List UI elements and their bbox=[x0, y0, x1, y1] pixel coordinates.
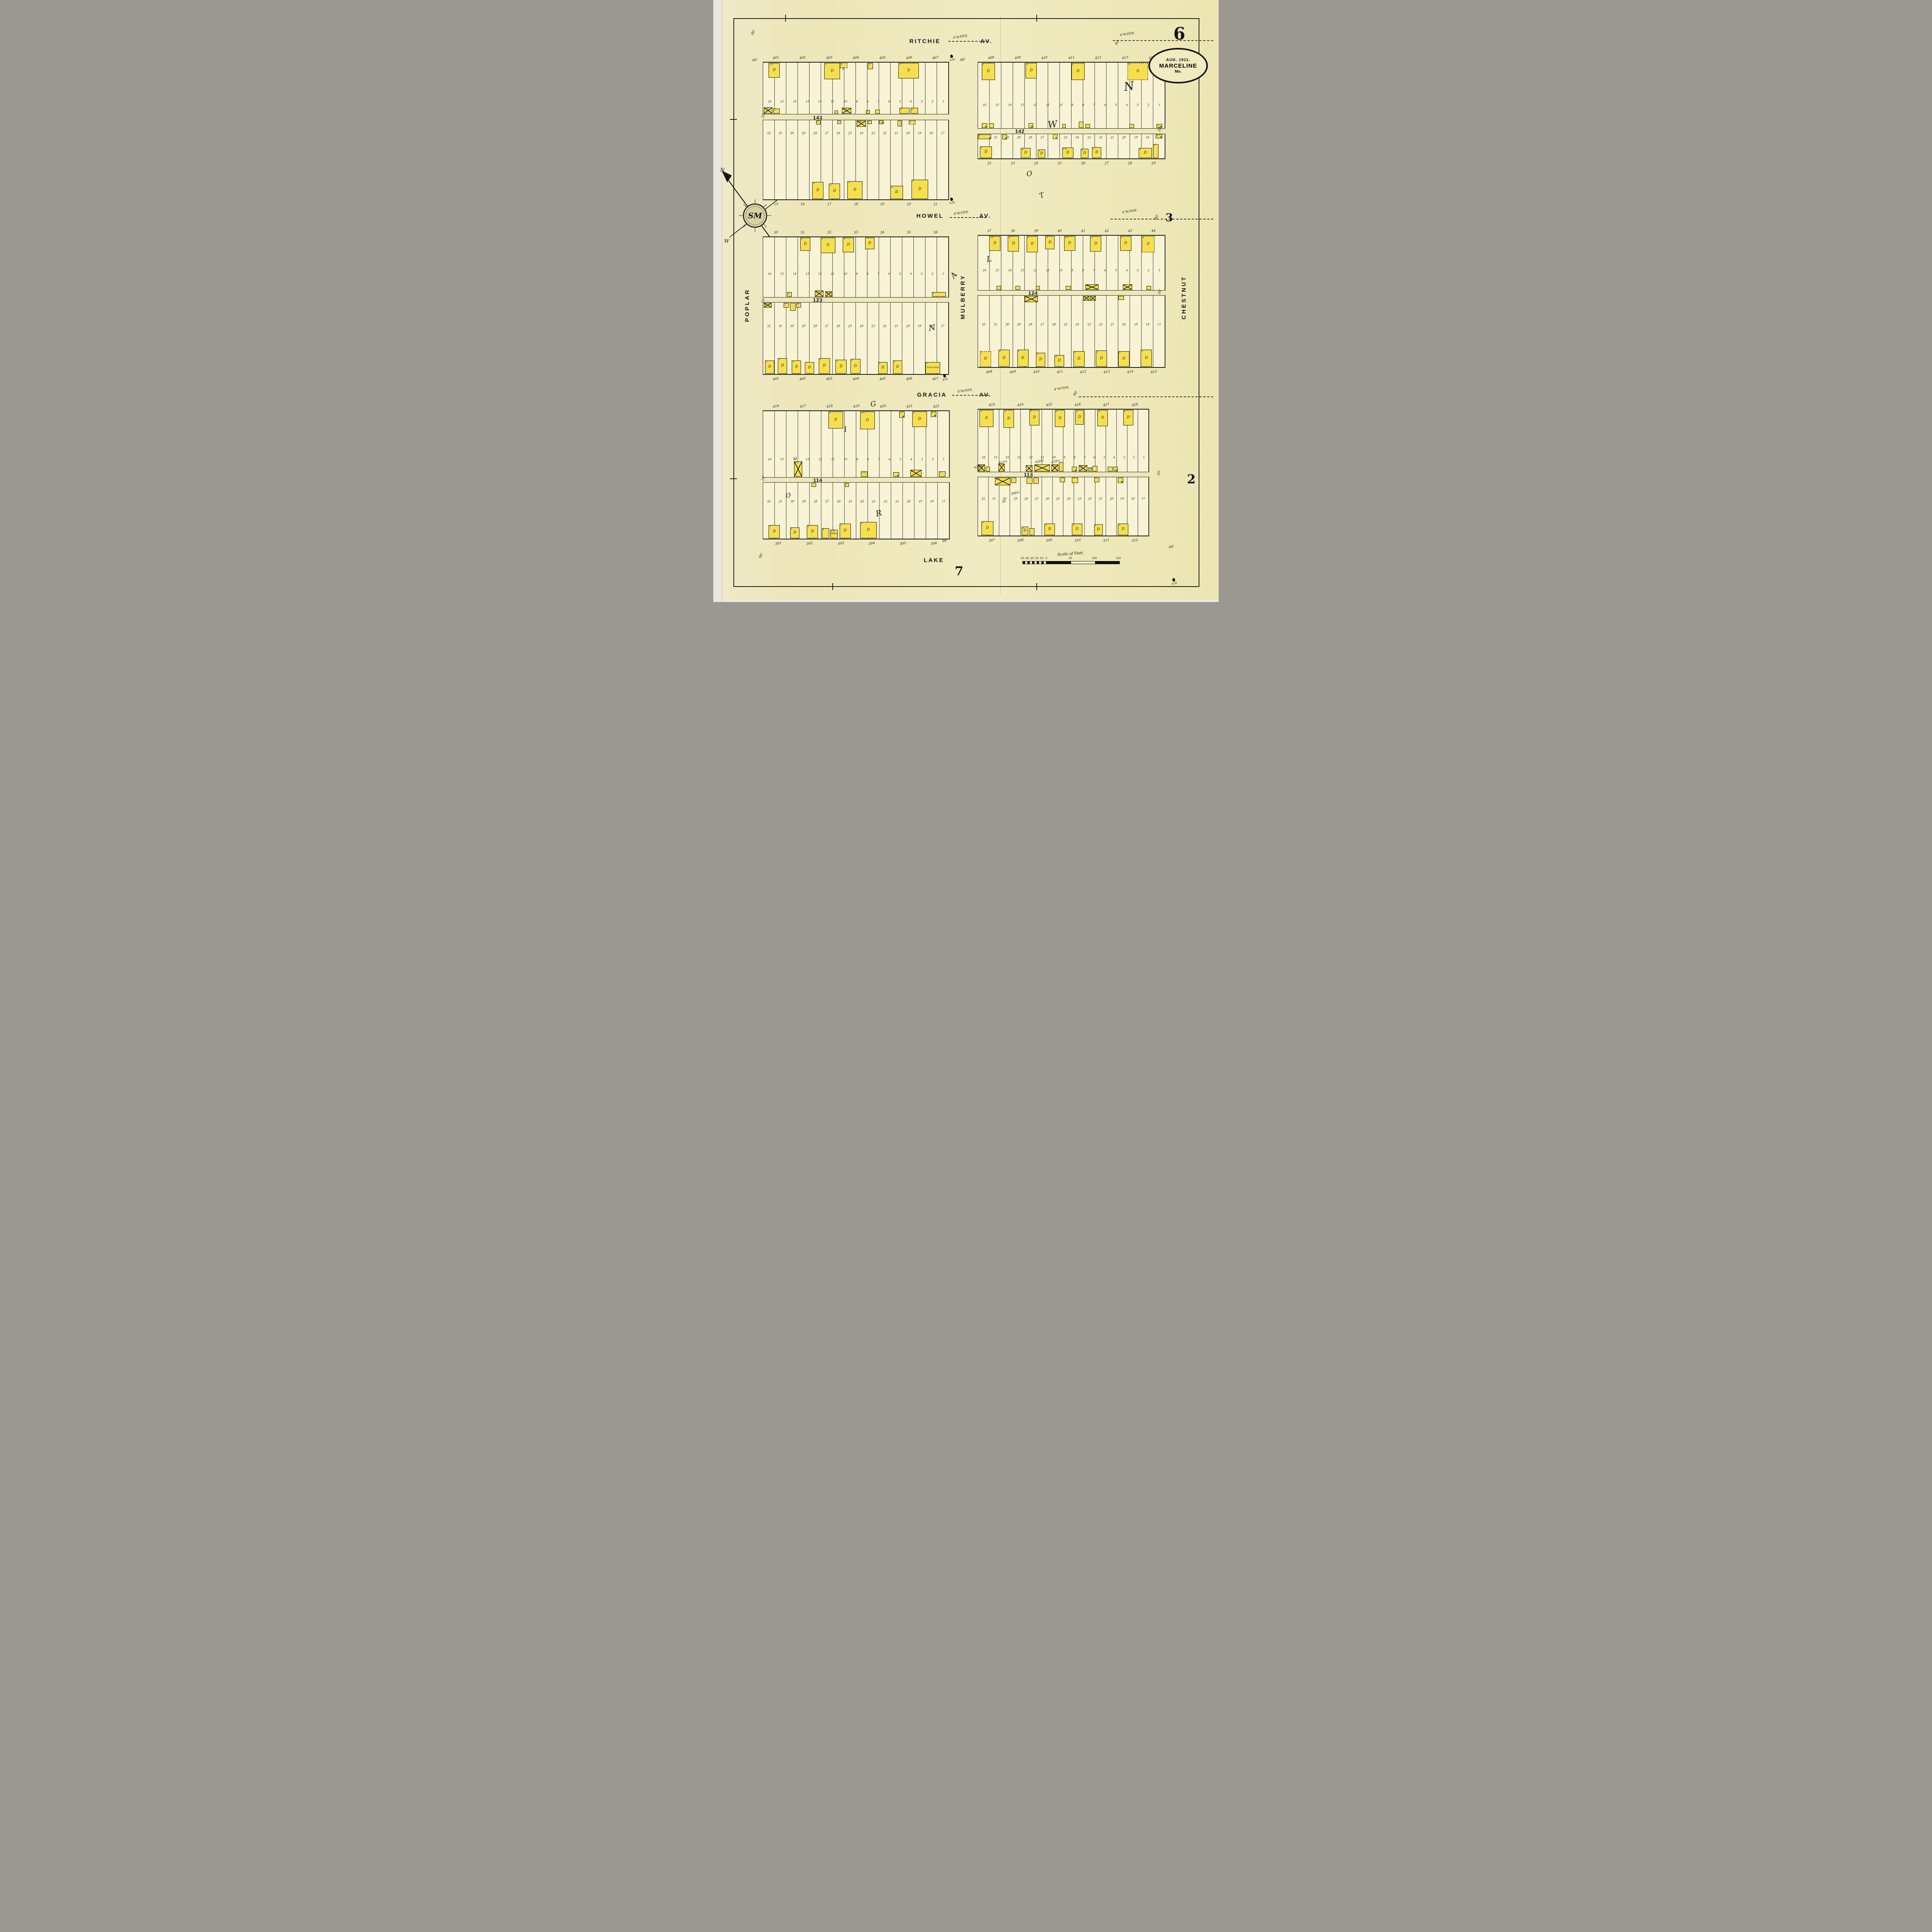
building-label: D bbox=[1055, 417, 1065, 420]
building-label: D bbox=[982, 526, 993, 530]
marker-dot bbox=[1075, 469, 1076, 471]
lot-numbers: 32313029282726252423222120191817 bbox=[763, 500, 949, 503]
lot-number: 14 bbox=[793, 272, 797, 276]
story-label: 1 bbox=[823, 528, 824, 531]
marker-dot bbox=[989, 137, 990, 138]
story-label: 1 bbox=[981, 146, 982, 149]
double-hydrant-marker: D.H. bbox=[941, 374, 949, 382]
hydrant-dot bbox=[943, 374, 947, 378]
story-label: 2 bbox=[1018, 350, 1020, 352]
outbuilding-footprint: 1½ bbox=[1079, 465, 1087, 471]
dwelling-footprint: 1D bbox=[840, 524, 851, 538]
lot-number: 10 bbox=[843, 99, 847, 103]
outbuilding-footprint bbox=[1034, 478, 1039, 484]
building-label: D bbox=[1027, 242, 1037, 246]
dwelling-footprint: 1D bbox=[1044, 524, 1055, 535]
story-label: 1½ bbox=[861, 412, 865, 414]
dwelling-footprint: 1D bbox=[1118, 351, 1129, 367]
special-label: 11 bbox=[793, 456, 798, 461]
outbuilding-footprint bbox=[1072, 467, 1077, 471]
dimension-label: 66' bbox=[752, 58, 758, 63]
building-label: D bbox=[1119, 357, 1129, 361]
house-number: 24 bbox=[1034, 161, 1039, 166]
lot-number: 25 bbox=[849, 499, 853, 503]
address-row: 416417418419420421422 bbox=[763, 405, 950, 408]
story-label: 2 bbox=[1027, 236, 1029, 239]
house-number: 410 bbox=[1041, 56, 1048, 60]
sheet-number: 6 bbox=[1173, 24, 1185, 44]
outbuilding-footprint bbox=[1072, 478, 1078, 483]
building-label: D bbox=[899, 69, 918, 73]
lot-number: 4 bbox=[910, 457, 913, 461]
outbuilding-footprint: 1½ bbox=[764, 107, 772, 114]
building-label: D bbox=[1004, 417, 1014, 421]
lot-numbers: 16151413121110987654321 bbox=[978, 269, 1165, 272]
dwelling-footprint: 2D bbox=[1017, 350, 1029, 367]
lot-number: 10 bbox=[1059, 103, 1063, 107]
outbuilding-footprint bbox=[1114, 467, 1118, 471]
outbuilding-footprint bbox=[875, 110, 880, 114]
house-number: 413 bbox=[1103, 370, 1110, 374]
block-113: 423424425426427428 161514131211109876543… bbox=[978, 409, 1149, 536]
dwelling-footprint: 1D bbox=[824, 63, 840, 79]
house-number: 414 bbox=[1127, 370, 1134, 374]
building-label: D bbox=[801, 242, 810, 246]
outbuilding-footprint: 1½ bbox=[842, 108, 851, 114]
building-label: D bbox=[1128, 70, 1148, 73]
house-number: 302 bbox=[806, 541, 813, 546]
building-label: D bbox=[1045, 527, 1054, 531]
story-label: 1 bbox=[817, 121, 818, 123]
story-label: 1 bbox=[983, 63, 984, 66]
outbuilding-footprint bbox=[837, 121, 841, 124]
dwelling-footprint: 2D bbox=[1123, 410, 1134, 425]
lot-number: 20 bbox=[1122, 323, 1126, 327]
house-number: 41 bbox=[1081, 229, 1085, 233]
outbuilding-footprint bbox=[1059, 462, 1063, 471]
address-row: 15161718192021 bbox=[763, 202, 949, 206]
lot-number: 8 bbox=[866, 272, 869, 276]
dwelling-footprint: 1D bbox=[792, 361, 801, 374]
story-label: 1½ bbox=[990, 236, 994, 239]
lot-number: 12 bbox=[818, 457, 822, 461]
house-number: 404 bbox=[852, 56, 859, 60]
story-label: 1½ bbox=[1035, 464, 1039, 467]
cursive-annotation: W bbox=[1047, 119, 1058, 130]
lot-number: 4 bbox=[910, 272, 912, 276]
lot-number: 26 bbox=[837, 324, 841, 328]
scan-edge bbox=[713, 0, 722, 602]
dwelling-footprint: 1D bbox=[800, 238, 810, 251]
outbuilding-footprint: 1½ bbox=[1051, 464, 1058, 471]
lot-row: 161514131211109876543211D1½D11D11½1½1½1 bbox=[763, 410, 950, 478]
lot-number: 19 bbox=[918, 131, 922, 135]
lot-number: 32 bbox=[767, 131, 771, 135]
building-label: D bbox=[821, 243, 835, 247]
building-label: D bbox=[1018, 356, 1028, 360]
lot-number: 14 bbox=[1005, 455, 1009, 459]
story-label: 1 bbox=[912, 180, 914, 182]
house-number: 416 bbox=[773, 404, 780, 409]
house-number: 403 bbox=[826, 56, 833, 60]
outbuilding-footprint bbox=[1094, 478, 1099, 482]
building-label: D bbox=[1074, 357, 1084, 361]
story-label: 1 bbox=[867, 110, 868, 113]
outbuilding-footprint bbox=[1002, 134, 1007, 139]
scale-tick: 40 bbox=[1026, 557, 1029, 560]
lot-number: 7 bbox=[1083, 456, 1086, 459]
lot-number: 26 bbox=[1052, 323, 1056, 327]
lot-number: 8 bbox=[1073, 456, 1076, 459]
lot-number: 30 bbox=[790, 324, 794, 328]
lot-number: 20 bbox=[1109, 497, 1114, 501]
outbuilding-footprint: 1 bbox=[899, 412, 905, 418]
outbuilding-footprint: 1 bbox=[773, 109, 780, 114]
dwelling-footprint: 2D bbox=[1008, 236, 1019, 252]
dwelling-footprint: 2D bbox=[1096, 350, 1107, 367]
story-label: 1 bbox=[926, 362, 928, 365]
outbuilding-footprint: 1 bbox=[932, 292, 946, 297]
scale-bar-graphic bbox=[1022, 561, 1120, 564]
marker-dot bbox=[1116, 469, 1117, 471]
lot-number: 23 bbox=[1077, 497, 1082, 501]
building-label: D bbox=[1090, 242, 1101, 246]
dwelling-footprint: 1D bbox=[807, 525, 818, 538]
outbuilding-footprint: 1From Plans bbox=[925, 362, 940, 374]
lot-number: 2 bbox=[1133, 456, 1135, 459]
building-label: D bbox=[1072, 527, 1082, 531]
lot-number: 20 bbox=[1122, 135, 1126, 139]
lot-row: 323130292827262524232221201918171½1D2D1D… bbox=[978, 477, 1149, 536]
building-label: D bbox=[861, 528, 876, 532]
story-label: 1 bbox=[841, 63, 842, 66]
outbuilding-footprint bbox=[1029, 528, 1034, 535]
lot-number: 32 bbox=[981, 497, 985, 501]
outbuilding-footprint bbox=[1146, 286, 1151, 290]
lot-number: 25 bbox=[1063, 323, 1068, 327]
story-label: 2 bbox=[861, 522, 862, 525]
dwelling-footprint: 2D bbox=[1090, 236, 1101, 252]
lot-number: 19 bbox=[918, 499, 922, 503]
building-label: D bbox=[980, 417, 993, 420]
dwelling-footprint: 2D bbox=[1097, 410, 1108, 426]
story-label: 1 bbox=[869, 63, 870, 66]
dwelling-footprint: 1½D bbox=[769, 63, 780, 78]
story-label: 2 bbox=[1022, 148, 1023, 151]
story-label: 1 bbox=[766, 361, 767, 363]
lot-number: 10 bbox=[1059, 268, 1063, 272]
building-label: D bbox=[866, 241, 874, 245]
dwelling-footprint: 2D bbox=[860, 522, 877, 538]
outbuilding-footprint: 2 bbox=[911, 108, 918, 114]
house-number: 407 bbox=[932, 377, 939, 381]
story-label: 1 bbox=[1074, 351, 1076, 354]
lot-number: 25 bbox=[1063, 135, 1068, 139]
story-label: 2 bbox=[1076, 410, 1078, 413]
lot-number: 1 bbox=[1158, 268, 1161, 272]
lot-number: 1 bbox=[1158, 103, 1161, 107]
lot-number: 15 bbox=[995, 268, 999, 272]
svg-text:SM: SM bbox=[748, 211, 762, 220]
building-label: D bbox=[792, 365, 801, 369]
lot-number: 11 bbox=[831, 457, 835, 461]
story-label: 1 bbox=[979, 134, 980, 137]
lot-number: 11 bbox=[1046, 268, 1050, 272]
scale-tick: 150 bbox=[1116, 557, 1121, 560]
building-label: D bbox=[990, 241, 1000, 245]
story-label: 1 bbox=[774, 109, 776, 111]
dwelling-footprint: 1D bbox=[1094, 524, 1103, 535]
scale-checker bbox=[1023, 561, 1047, 564]
story-label: 1½ bbox=[1086, 284, 1090, 287]
marker-dot bbox=[1121, 481, 1122, 482]
story-label: 2 bbox=[1128, 63, 1130, 66]
building-label: D bbox=[1118, 527, 1128, 531]
story-label: 1 bbox=[779, 358, 780, 361]
lot-number: 23 bbox=[871, 324, 876, 328]
outbuilding-footprint bbox=[982, 123, 988, 128]
lot-number: 20 bbox=[906, 324, 910, 328]
house-number: 423 bbox=[988, 403, 995, 407]
story-label: 1½ bbox=[831, 530, 835, 532]
story-label: 1 bbox=[840, 524, 842, 526]
lot-row: 3231302928272625242322212019181711½22D2D… bbox=[763, 120, 949, 200]
address-row: 2223242526272829 bbox=[978, 162, 1165, 165]
lot-numbers: 16151413121110987654321 bbox=[763, 272, 949, 276]
lot-row: 161514131211109876543211D1D1DD11½1½1 bbox=[763, 236, 949, 298]
lot-number: 31 bbox=[779, 324, 783, 328]
water-pipe-line bbox=[1079, 396, 1213, 397]
lot-number: 14 bbox=[1008, 268, 1012, 272]
house-number: 32 bbox=[827, 230, 832, 235]
house-number: 27 bbox=[1104, 161, 1109, 166]
lot-number: 2 bbox=[932, 457, 934, 461]
dwelling-footprint: 1D bbox=[981, 521, 993, 535]
story-label: 1½ bbox=[769, 63, 773, 66]
story-label: 2 bbox=[912, 108, 913, 111]
story-label: 1 bbox=[821, 238, 823, 240]
outbuilding-footprint bbox=[997, 286, 1001, 290]
stamp-state: Mo. bbox=[1175, 70, 1181, 74]
lot-number: 8 bbox=[1082, 103, 1085, 107]
outbuilding-footprint: 1½ bbox=[815, 291, 823, 297]
building-label: D bbox=[1142, 242, 1155, 246]
lot-number: 12 bbox=[818, 99, 822, 103]
building-label: D bbox=[1076, 415, 1083, 419]
dwelling-footprint: 2D bbox=[1118, 524, 1128, 535]
building-label: D bbox=[879, 366, 887, 370]
story-label: 2 bbox=[1097, 350, 1098, 353]
lot-number: 27 bbox=[825, 499, 829, 503]
story-label: 2 bbox=[1119, 524, 1120, 526]
scale-seg bbox=[1047, 561, 1071, 564]
dwelling-footprint: 1D bbox=[980, 351, 991, 367]
lot-number: 21 bbox=[1099, 497, 1103, 501]
title-stamp: AUG. 1911. MARCELINE Mo. bbox=[1148, 48, 1208, 83]
street-poplar: POPLAR bbox=[744, 289, 751, 322]
lot-number: 1 bbox=[942, 99, 944, 103]
outbuilding-footprint: 1 bbox=[1156, 134, 1162, 138]
lot-number: 27 bbox=[825, 324, 829, 328]
building-label: D bbox=[848, 188, 862, 192]
house-number: 407 bbox=[932, 56, 939, 60]
lot-number: 28 bbox=[813, 131, 818, 135]
house-number: 426 bbox=[1074, 403, 1081, 407]
lot-number: 20 bbox=[906, 131, 910, 135]
story-label: 1 bbox=[932, 412, 933, 414]
outbuilding-footprint bbox=[835, 111, 838, 114]
lot-number: 7 bbox=[1093, 103, 1095, 107]
cursive-annotation: N bbox=[928, 323, 936, 333]
lot-number: 31 bbox=[993, 323, 998, 327]
lot-number: 11 bbox=[830, 272, 835, 276]
stamp-city: MARCELINE bbox=[1159, 63, 1197, 69]
house-number: 411 bbox=[1068, 56, 1075, 60]
house-number: 303 bbox=[837, 541, 844, 546]
lot-numbers: 16151413121110987654321 bbox=[763, 100, 949, 103]
lot-number: 16 bbox=[982, 103, 986, 107]
lot-number: 7 bbox=[1093, 268, 1095, 272]
street-gracia: GRACIA bbox=[917, 392, 947, 398]
story-label: 1 bbox=[829, 412, 831, 414]
house-number: 304 bbox=[868, 541, 875, 546]
lot-number: 28 bbox=[813, 499, 818, 503]
address-row: 401402403404405406407 bbox=[763, 56, 949, 60]
house-number: 424 bbox=[1017, 403, 1024, 407]
story-label: 1 bbox=[769, 525, 771, 528]
house-number: 17 bbox=[827, 202, 832, 207]
building-label: D bbox=[1072, 70, 1084, 73]
dwelling-footprint: 1D bbox=[1072, 524, 1082, 535]
lot-number: 21 bbox=[895, 324, 899, 328]
story-label: 1 bbox=[784, 303, 786, 306]
lot-number: 12 bbox=[1033, 268, 1037, 272]
dwelling-footprint: 1D bbox=[1139, 148, 1152, 158]
lot-number: 15 bbox=[780, 457, 784, 461]
lot-number: 2 bbox=[931, 272, 934, 276]
building-label: D bbox=[1124, 416, 1133, 420]
dwelling-footprint: 1D bbox=[765, 361, 774, 374]
story-label: 1½ bbox=[862, 471, 866, 474]
dwelling-footprint: 1D bbox=[898, 63, 919, 78]
story-label: 1 bbox=[1139, 148, 1141, 151]
lot-number: 3 bbox=[920, 272, 923, 276]
hydrant-dot bbox=[1172, 578, 1176, 582]
outbuilding-footprint bbox=[1027, 478, 1032, 484]
house-number: 403 bbox=[826, 377, 833, 381]
address-row: 423424425426427428 bbox=[978, 403, 1149, 407]
lot-number: 13 bbox=[1017, 455, 1021, 459]
outbuilding-footprint: 1½ bbox=[1088, 468, 1092, 471]
lot-number: 18 bbox=[929, 131, 934, 135]
story-label: 1 bbox=[1156, 134, 1158, 137]
outbuilding-footprint bbox=[790, 303, 796, 311]
house-number: 427 bbox=[1103, 403, 1110, 407]
lot-number: 24 bbox=[860, 131, 864, 135]
house-number: 23 bbox=[1010, 161, 1015, 166]
outbuilding-footprint bbox=[1011, 478, 1016, 483]
building-label: D bbox=[805, 366, 814, 370]
lot-number: 20 bbox=[906, 499, 911, 503]
house-number: 401 bbox=[773, 377, 780, 381]
story-label: 1½ bbox=[795, 461, 799, 464]
building-label: D bbox=[980, 150, 992, 154]
lot-number: 6 bbox=[1104, 103, 1106, 107]
lot-number: 19 bbox=[1134, 323, 1138, 327]
dwelling-footprint: 1D bbox=[912, 180, 928, 199]
lot-row: 161514131211109876543211½D1D111D1½11½132 bbox=[763, 62, 949, 114]
block-114: 416417418419420421422 161514131211109876… bbox=[763, 410, 950, 539]
lot-number: 23 bbox=[872, 499, 876, 503]
house-number: 25 bbox=[1057, 161, 1062, 166]
outbuilding-footprint bbox=[1085, 124, 1090, 128]
building-label: D bbox=[819, 364, 830, 368]
dwelling-footprint: 2D bbox=[1027, 236, 1038, 252]
lot-number: 30 bbox=[790, 499, 794, 503]
dwelling-footprint: 1D bbox=[835, 360, 847, 374]
outbuilding-footprint: 1½ bbox=[1085, 284, 1099, 290]
story-label: 1 bbox=[1046, 236, 1048, 239]
lot-number: 23 bbox=[1087, 323, 1091, 327]
building-label: D bbox=[913, 417, 927, 421]
building-label: D bbox=[891, 190, 903, 194]
house-number: 42 bbox=[1104, 229, 1109, 233]
marker-dot bbox=[985, 126, 986, 127]
story-label: 1 bbox=[982, 521, 984, 524]
lot-number: 3 bbox=[1136, 103, 1139, 107]
marker-dot bbox=[882, 122, 883, 123]
building-label: D bbox=[861, 418, 875, 422]
frame-tick bbox=[785, 15, 786, 22]
lot-number: 28 bbox=[1029, 135, 1033, 139]
lot-row: 323130292827262524232221201918171D1D1D11… bbox=[763, 482, 950, 539]
lot-number: 9 bbox=[856, 272, 858, 276]
lot-number: 29 bbox=[1013, 497, 1017, 501]
lot-number: 18 bbox=[1145, 135, 1150, 139]
outbuilding-footprint bbox=[1015, 286, 1020, 290]
street-howel: HOWEL bbox=[917, 213, 944, 219]
lot-number: 9 bbox=[1064, 456, 1066, 459]
house-number: 408 bbox=[988, 56, 995, 60]
story-label: 1 bbox=[1119, 351, 1121, 354]
lot-number: 5 bbox=[1103, 456, 1105, 459]
lot-number: 29 bbox=[802, 499, 806, 503]
lot-number: 17 bbox=[1141, 497, 1146, 501]
story-label: 1½ bbox=[765, 107, 769, 110]
lot-number: 5 bbox=[1115, 103, 1117, 107]
water-pipe-line bbox=[950, 217, 986, 218]
house-number: 417 bbox=[799, 404, 806, 409]
story-label: 1½ bbox=[816, 291, 820, 293]
lot-number: 18 bbox=[1131, 497, 1135, 501]
building-label: D bbox=[1030, 416, 1039, 420]
story-label: 1½ bbox=[1065, 236, 1069, 239]
story-label: 1 bbox=[900, 412, 901, 414]
outbuilding-footprint: 1 bbox=[868, 63, 872, 69]
story-label: 1 bbox=[1095, 524, 1097, 527]
house-number: 35 bbox=[907, 230, 912, 235]
dwelling-footprint: 1D bbox=[1092, 147, 1101, 158]
dwelling-footprint: 1½D bbox=[989, 236, 1000, 251]
lot-number: 14 bbox=[1008, 103, 1012, 107]
story-label: 2 bbox=[830, 184, 831, 186]
building-label: D bbox=[1046, 241, 1054, 245]
street-chestnut: CHESTNUT bbox=[1181, 276, 1187, 320]
house-number: 306 bbox=[931, 541, 938, 546]
stamp-date: AUG. 1911. bbox=[1166, 58, 1190, 62]
lot-number: 9 bbox=[1071, 268, 1073, 272]
story-label: 1 bbox=[791, 527, 793, 530]
